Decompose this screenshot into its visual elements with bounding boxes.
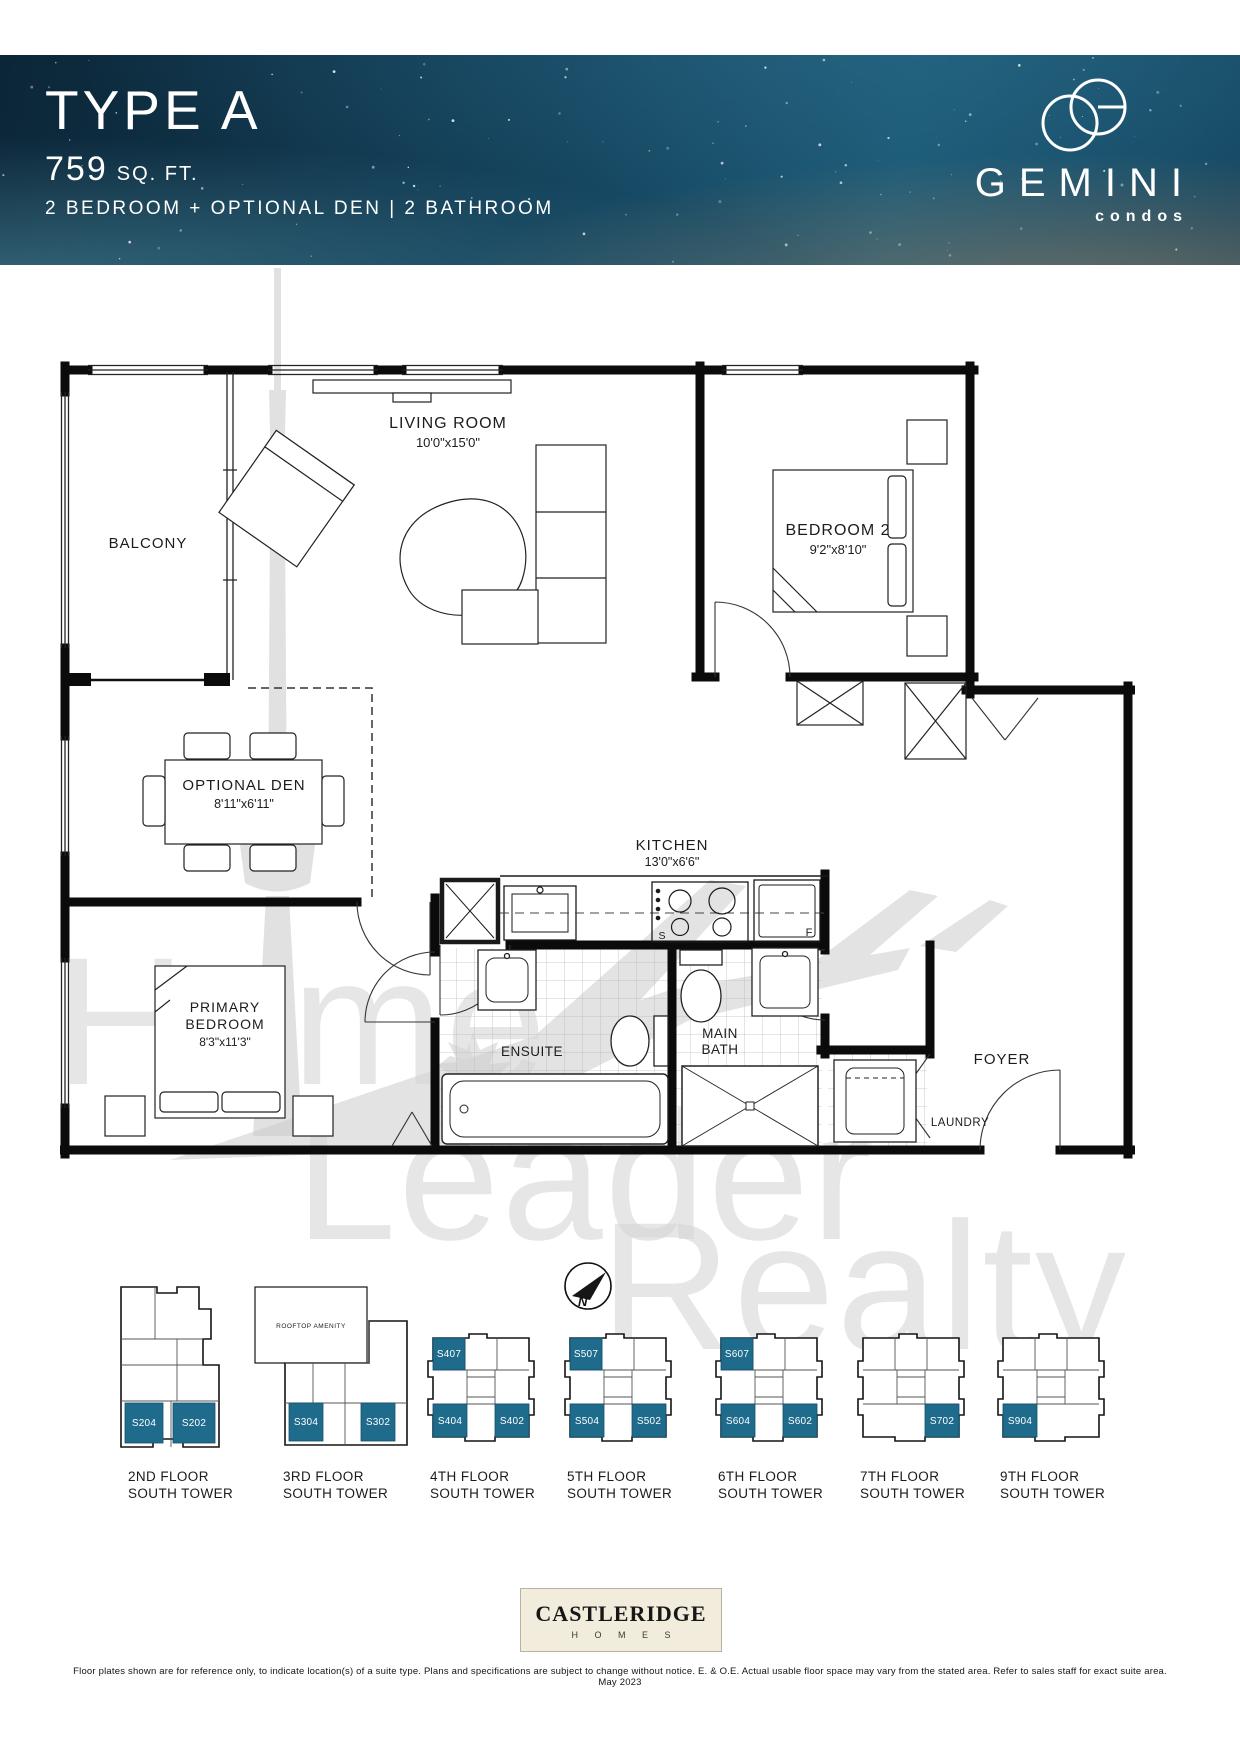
floorplan-sheet: TYPE A 759 SQ. FT. 2 BEDROOM + OPTIONAL … [0, 0, 1240, 1754]
tv-console [313, 380, 511, 393]
floor-line: 9TH FLOOR [1000, 1468, 1105, 1485]
brand-subtitle: condos [1095, 208, 1188, 226]
unit-number: S602 [788, 1416, 812, 1427]
gemini-logo-icon [1032, 75, 1142, 155]
stove [652, 882, 748, 942]
area-unit: SQ. FT. [117, 163, 199, 186]
nightstand [907, 616, 947, 656]
armchair [219, 430, 354, 566]
bedroom2-dims: 9'2"x8'10" [810, 542, 867, 557]
unit-number: S904 [1008, 1416, 1032, 1427]
primary-label-2: BEDROOM [185, 1016, 264, 1032]
unit-number: S607 [725, 1349, 749, 1360]
ottoman [462, 590, 538, 644]
floor-line: 4TH FLOOR [430, 1468, 535, 1485]
floor-line: 5TH FLOOR [567, 1468, 672, 1485]
unit-number: S402 [500, 1416, 524, 1427]
builder-subtitle: H O M E S [571, 1630, 677, 1640]
mainbath-label-2: BATH [701, 1042, 738, 1057]
unit-number: S502 [637, 1416, 661, 1427]
unit-number: S702 [930, 1416, 954, 1427]
keyplate-6th-floor: S607 S604 S602 [713, 1333, 825, 1443]
fridge-letter: F [806, 927, 813, 939]
rooftop-amenity-label: ROOFTOP AMENITY [276, 1323, 346, 1330]
unit-number: S604 [726, 1416, 750, 1427]
living-room-dims: 10'0"x15'0" [416, 435, 480, 450]
sofa [536, 445, 606, 643]
mainbath-toilet [680, 950, 722, 965]
den-dims: 8'11"x6'11" [214, 797, 274, 811]
keyplate-caption-5th: 5TH FLOOR SOUTH TOWER [567, 1468, 672, 1502]
north-arrow-icon: N [562, 1260, 614, 1312]
keyplate-7th-floor: S702 [855, 1333, 967, 1443]
tower-line: SOUTH TOWER [1000, 1485, 1105, 1502]
ensuite-label: ENSUITE [501, 1044, 563, 1059]
balcony-structure [65, 372, 237, 686]
unit-number: S202 [182, 1418, 206, 1429]
unit-number: S507 [574, 1349, 598, 1360]
floor-line: 7TH FLOOR [860, 1468, 965, 1485]
tower-line: SOUTH TOWER [718, 1485, 823, 1502]
primary-furniture [105, 966, 333, 1136]
unit-number: S304 [294, 1417, 318, 1428]
tower-line: SOUTH TOWER [567, 1485, 672, 1502]
keyplate-caption-6th: 6TH FLOOR SOUTH TOWER [718, 1468, 823, 1502]
unit-number: S204 [132, 1418, 156, 1429]
closets [797, 681, 966, 759]
primary-label-1: PRIMARY [190, 999, 261, 1015]
keyplate-2nd-floor: S204 S202 [115, 1283, 235, 1455]
nightstand [105, 1096, 145, 1136]
tower-line: SOUTH TOWER [128, 1485, 233, 1502]
suite-configuration: 2 BEDROOM + OPTIONAL DEN | 2 BATHROOM [45, 198, 554, 220]
area-value: 759 [45, 150, 108, 189]
brand-name: GEMINI [975, 161, 1195, 206]
suite-area: 759 SQ. FT. [45, 150, 554, 189]
living-room-label: LIVING ROOM [389, 415, 507, 432]
floor-line: 3RD FLOOR [283, 1468, 388, 1485]
unit-number: S504 [575, 1416, 599, 1427]
header-banner: TYPE A 759 SQ. FT. 2 BEDROOM + OPTIONAL … [0, 55, 1240, 265]
keyplate-9th-floor: S904 [995, 1333, 1107, 1443]
keyplate-caption-2nd: 2ND FLOOR SOUTH TOWER [128, 1468, 233, 1502]
kitchen-label: KITCHEN [636, 837, 709, 854]
balcony-label: BALCONY [109, 535, 188, 552]
tower-line: SOUTH TOWER [430, 1485, 535, 1502]
unit-number: S302 [366, 1417, 390, 1428]
suite-type-title: TYPE A [45, 83, 554, 138]
tower-line: SOUTH TOWER [283, 1485, 388, 1502]
bedroom2-label: BEDROOM 2 [785, 522, 890, 539]
keyplate-4th-floor: S407 S404 S402 [425, 1333, 537, 1443]
unit-number: S404 [438, 1416, 462, 1427]
north-letter: N [578, 1294, 588, 1309]
kitchen-counter [442, 876, 828, 942]
keyplate-caption-7th: 7TH FLOOR SOUTH TOWER [860, 1468, 965, 1502]
builder-name: CASTLERIDGE [535, 1601, 706, 1627]
keyplate-caption-4th: 4TH FLOOR SOUTH TOWER [430, 1468, 535, 1502]
kitchen-dims: 13'0"x6'6" [645, 855, 700, 869]
laundry-label: LAUNDRY [931, 1117, 989, 1129]
unit-number: S407 [437, 1349, 461, 1360]
foyer-label: FOYER [974, 1051, 1031, 1068]
builder-logo: CASTLERIDGE H O M E S [520, 1588, 722, 1652]
disclaimer-text: Floor plates shown are for reference onl… [70, 1666, 1170, 1688]
den-label: OPTIONAL DEN [182, 777, 305, 794]
keyplate-caption-3rd: 3RD FLOOR SOUTH TOWER [283, 1468, 388, 1502]
keyplate-caption-9th: 9TH FLOOR SOUTH TOWER [1000, 1468, 1105, 1502]
keyplate-5th-floor: S507 S504 S502 [562, 1333, 674, 1443]
floorplan-drawing: BALCONY LIVING ROOM 10'0"x15'0" BEDROOM … [60, 350, 1135, 1180]
nightstand [293, 1096, 333, 1136]
keyplate-3rd-floor: ROOFTOP AMENITY S304 S302 [253, 1285, 421, 1450]
ensuite-toilet [654, 1016, 668, 1066]
primary-dims: 8'3"x11'3" [199, 1035, 251, 1049]
tower-line: SOUTH TOWER [860, 1485, 965, 1502]
stove-letter: S [658, 930, 665, 942]
suite-summary: TYPE A 759 SQ. FT. 2 BEDROOM + OPTIONAL … [45, 83, 554, 220]
brand-block: GEMINI condos [975, 75, 1182, 226]
nightstand [907, 420, 947, 464]
floor-line: 2ND FLOOR [128, 1468, 233, 1485]
laundry-fixtures [834, 1060, 916, 1142]
floor-line: 6TH FLOOR [718, 1468, 823, 1485]
mainbath-label-1: MAIN [702, 1026, 738, 1041]
